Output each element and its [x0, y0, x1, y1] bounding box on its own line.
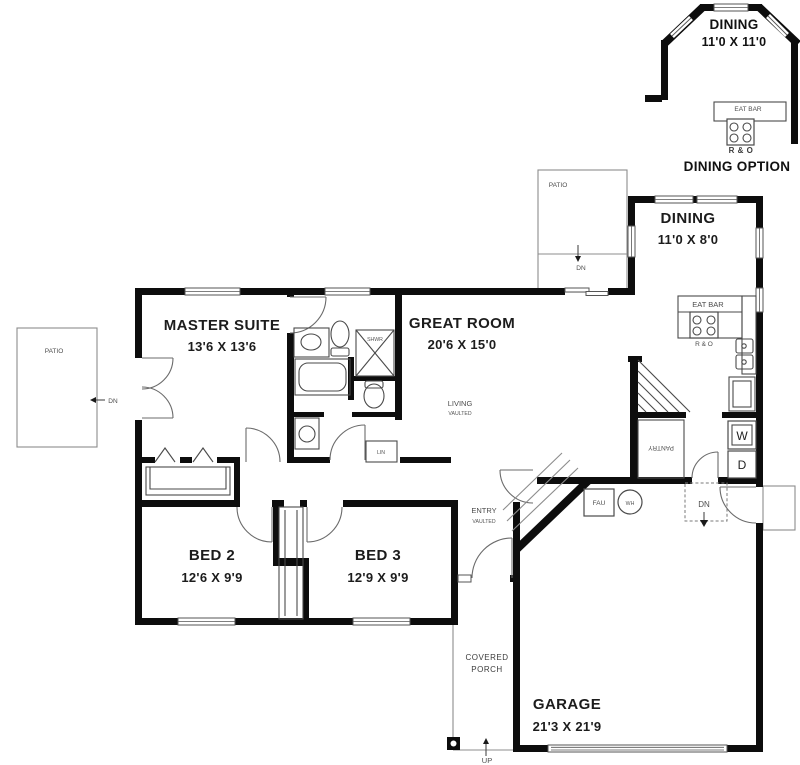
master-suite-door — [246, 428, 280, 462]
dining-dims: 11'0 X 8'0 — [658, 232, 719, 247]
master-closet — [146, 448, 230, 495]
patio-french-doors — [142, 358, 173, 418]
patio-top-label: PATIO — [549, 182, 568, 189]
great-room-label: GREAT ROOM — [409, 315, 515, 332]
entry-label: ENTRY — [471, 506, 496, 515]
toilet-1 — [331, 321, 349, 347]
porch-label-1: COVERED — [465, 653, 508, 662]
corner-shelves — [638, 360, 690, 412]
linen-label: LIN — [377, 450, 385, 456]
side-stoop-outline — [763, 486, 795, 530]
inset-dining-label: DINING — [709, 17, 758, 32]
floor-plan-page: DINING 11'0 X 11'0 EAT BAR R & O DINING … — [0, 0, 800, 765]
dining-label: DINING — [661, 210, 716, 227]
up-label: UP — [482, 756, 492, 765]
bed3-door — [307, 507, 342, 542]
garage-service-door — [692, 452, 718, 478]
master-suite-dims: 13'6 X 13'6 — [188, 339, 257, 354]
shower-label: SHWR — [367, 337, 383, 343]
entry-note: VAULTED — [472, 519, 495, 525]
patio-left-label: PATIO — [45, 348, 64, 355]
patio-left-dn: DN — [108, 398, 118, 405]
fau-label: FAU — [593, 500, 606, 507]
floor-plan-canvas: DINING 11'0 X 11'0 EAT BAR R & O DINING … — [0, 0, 800, 765]
inset-dining-dims: 11'0 X 11'0 — [702, 35, 767, 49]
slider-door — [565, 288, 589, 292]
bed2-dims: 12'6 X 9'9 — [181, 570, 242, 585]
eat-bar-label: EAT BAR — [692, 300, 724, 309]
garage-equipment — [503, 453, 727, 531]
bifold-door — [193, 448, 213, 462]
porch-label-2: PORCH — [471, 665, 502, 674]
inset-range-label: R & O — [729, 146, 754, 155]
washer-label: W — [736, 429, 748, 443]
bed3-dims: 12'9 X 9'9 — [347, 570, 408, 585]
front-door — [472, 538, 512, 578]
exterior-walls — [135, 196, 763, 752]
stairs-dn-label: DN — [698, 500, 710, 509]
living-note: LIVING — [448, 399, 473, 408]
vaulted-note: VAULTED — [448, 411, 471, 417]
inset-eat-bar-label: EAT BAR — [734, 106, 762, 113]
entry-sidelight — [458, 575, 471, 582]
dryer-label: D — [738, 458, 747, 472]
wh-label: WH — [626, 501, 635, 507]
garage-dims: 21'3 X 21'9 — [533, 719, 602, 734]
pantry-label: PANTRY — [647, 444, 673, 451]
dining-option-caption: DINING OPTION — [684, 159, 791, 174]
bed2-label: BED 2 — [189, 547, 235, 564]
garage-stoop-door — [720, 487, 756, 523]
master-suite-label: MASTER SUITE — [164, 317, 280, 334]
garage-label: GARAGE — [533, 696, 601, 713]
range-label: R & O — [695, 341, 713, 348]
patio-top-dn: DN — [576, 265, 586, 272]
hall-bath-door — [330, 425, 365, 460]
vanity-sink — [301, 334, 321, 350]
kitchen-sink — [736, 339, 753, 353]
bed3-label: BED 3 — [355, 547, 401, 564]
bifold-door — [155, 448, 175, 462]
great-room-dims: 20'6 X 15'0 — [428, 337, 497, 352]
patio-left-outline — [17, 328, 97, 447]
bed2-door — [237, 507, 272, 542]
garage-door — [548, 745, 727, 752]
kitchen-counter — [742, 296, 756, 374]
